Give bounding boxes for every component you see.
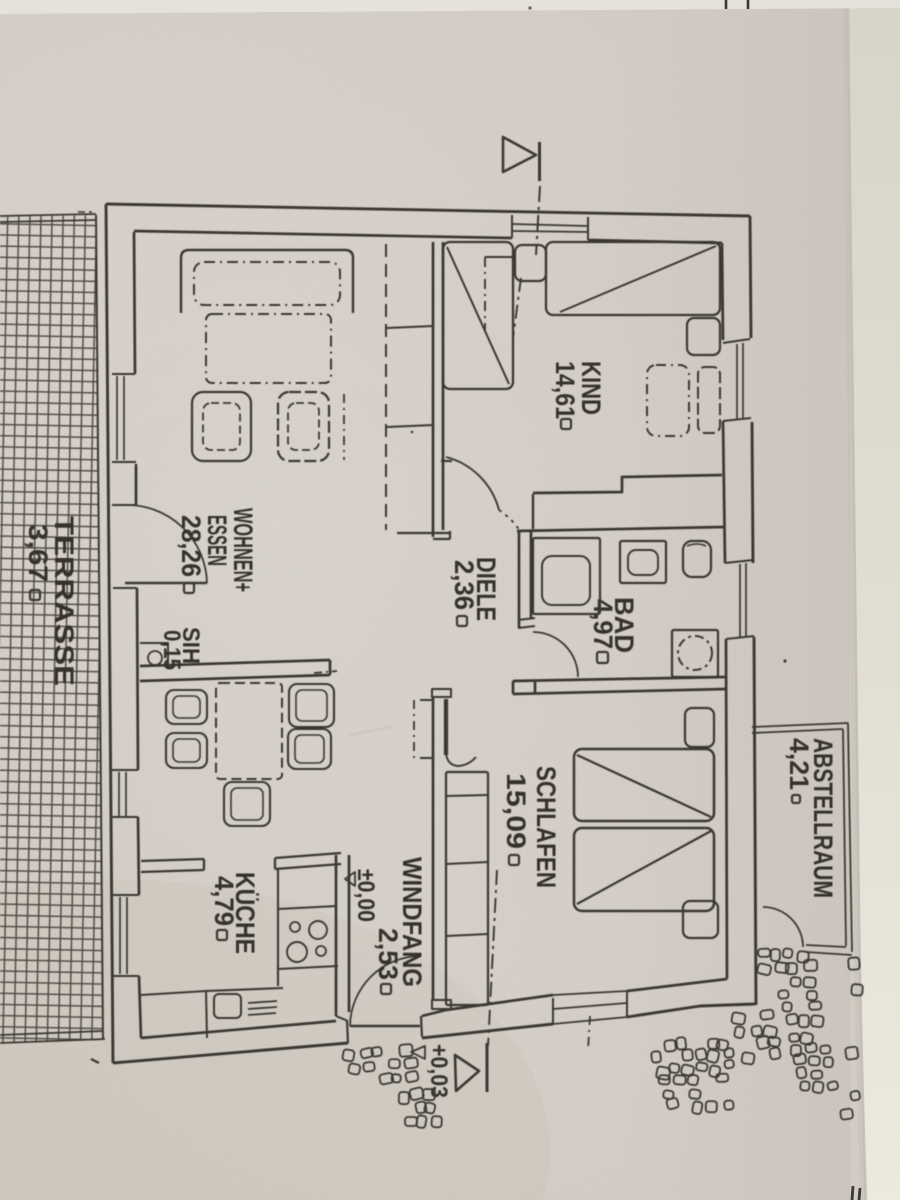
svg-text:0,15: 0,15 (158, 630, 185, 670)
svg-text:4,97: 4,97 (588, 599, 618, 649)
svg-text:SCHLAFEN: SCHLAFEN (531, 766, 561, 888)
svg-text:3,67: 3,67 (23, 524, 53, 582)
svg-text:2,36: 2,36 (449, 560, 479, 610)
svg-text:4,21: 4,21 (784, 738, 814, 790)
svg-text:15,09: 15,09 (501, 773, 531, 849)
svg-text:2,53: 2,53 (373, 928, 403, 980)
svg-text:±0,00: ±0,00 (352, 869, 379, 922)
svg-text:28,26: 28,26 (176, 515, 206, 577)
svg-text:4,79: 4,79 (209, 876, 239, 926)
svg-text:14,61: 14,61 (550, 361, 580, 419)
